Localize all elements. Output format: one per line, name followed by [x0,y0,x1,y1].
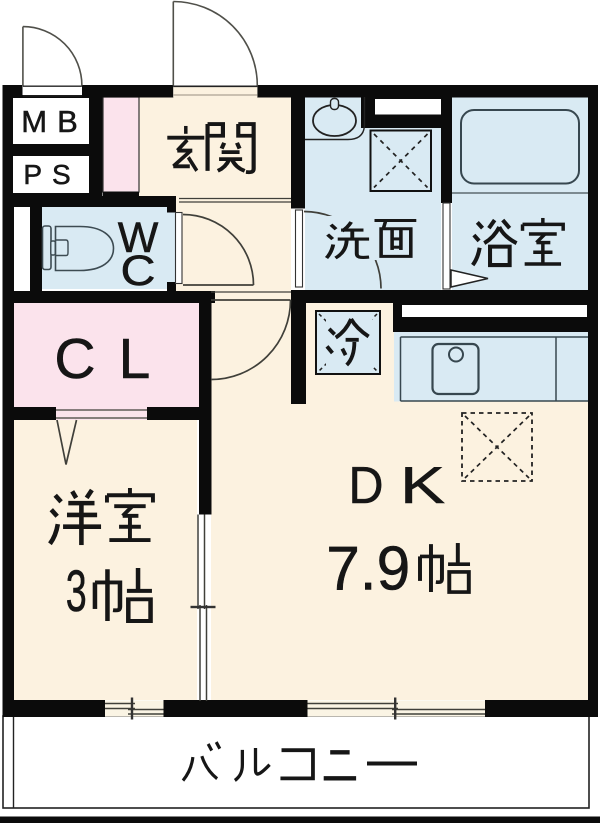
svg-text:C: C [121,247,156,295]
svg-text:K: K [400,457,445,515]
svg-text:D: D [349,457,384,515]
svg-text:L: L [119,327,151,391]
svg-text:C: C [54,327,95,391]
svg-text:MB: MB [21,104,88,139]
svg-text:PS: PS [23,159,80,190]
svg-text:3: 3 [66,559,87,624]
svg-text:7.9: 7.9 [326,535,410,604]
